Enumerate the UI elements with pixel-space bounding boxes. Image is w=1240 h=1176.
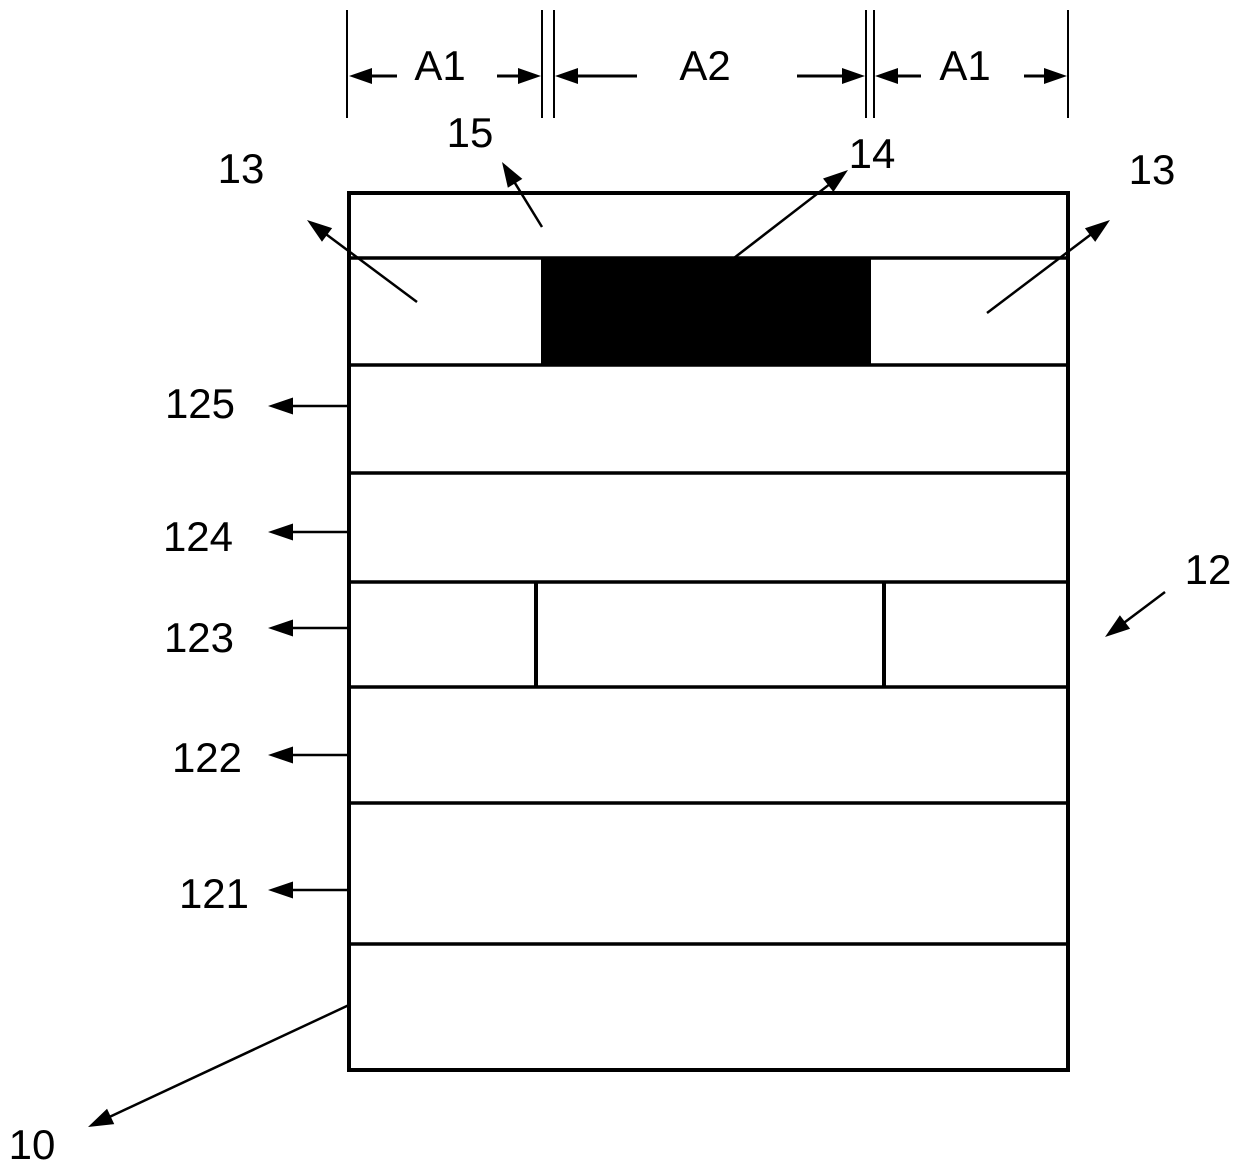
label-14: 14 [849, 130, 896, 177]
leader-arrow-12-line [1123, 592, 1165, 623]
figure: A1A2A1151413131251241231221211210 [0, 0, 1240, 1171]
label-a1-left: A1 [414, 42, 465, 89]
dimension-arrow-head [349, 68, 372, 84]
leader-arrow-13-left-head [307, 220, 332, 242]
label-124: 124 [163, 513, 233, 560]
dimension-arrow-head [875, 68, 898, 84]
dimension-arrow-head [555, 68, 578, 84]
leader-arrow-14-head [823, 170, 848, 192]
dimension-arrow-head [518, 68, 541, 84]
leader-arrow-15-line [514, 182, 542, 227]
leader-arrow-13-right-head [1085, 220, 1110, 242]
leader-arrow-123-head [268, 620, 293, 637]
label-a2: A2 [679, 42, 730, 89]
label-a1-right: A1 [939, 42, 990, 89]
label-13-right: 13 [1129, 146, 1176, 193]
reference-labels: A1A2A1151413131251241231221211210 [9, 42, 1232, 1168]
device-structure [349, 193, 1068, 1070]
label-122: 122 [172, 734, 242, 781]
label-123: 123 [164, 614, 234, 661]
label-12: 12 [1185, 546, 1232, 593]
label-125: 125 [165, 380, 235, 427]
leader-arrow-12-head [1105, 615, 1130, 637]
label-13-left: 13 [218, 145, 265, 192]
leader-arrow-13-right-line [987, 234, 1092, 313]
label-10: 10 [9, 1121, 56, 1168]
label-15: 15 [447, 109, 494, 156]
dimension-arrow-head [1044, 68, 1067, 84]
leader-arrow-122-head [268, 747, 293, 764]
leader-arrow-10-line [109, 1005, 349, 1117]
label-121: 121 [179, 870, 249, 917]
leader-arrow-14-line [734, 184, 830, 258]
dimension-arrow-head [842, 68, 865, 84]
leader-arrow-10-head [88, 1109, 114, 1127]
black-region-14 [541, 258, 871, 365]
leader-arrow-121-head [268, 882, 293, 899]
leader-arrow-125-head [268, 398, 293, 415]
leader-arrow-15-head [502, 162, 522, 188]
figure-canvas: A1A2A1151413131251241231221211210 [0, 0, 1240, 1171]
leader-arrow-13-left-line [325, 234, 417, 302]
leader-arrow-124-head [268, 524, 293, 541]
